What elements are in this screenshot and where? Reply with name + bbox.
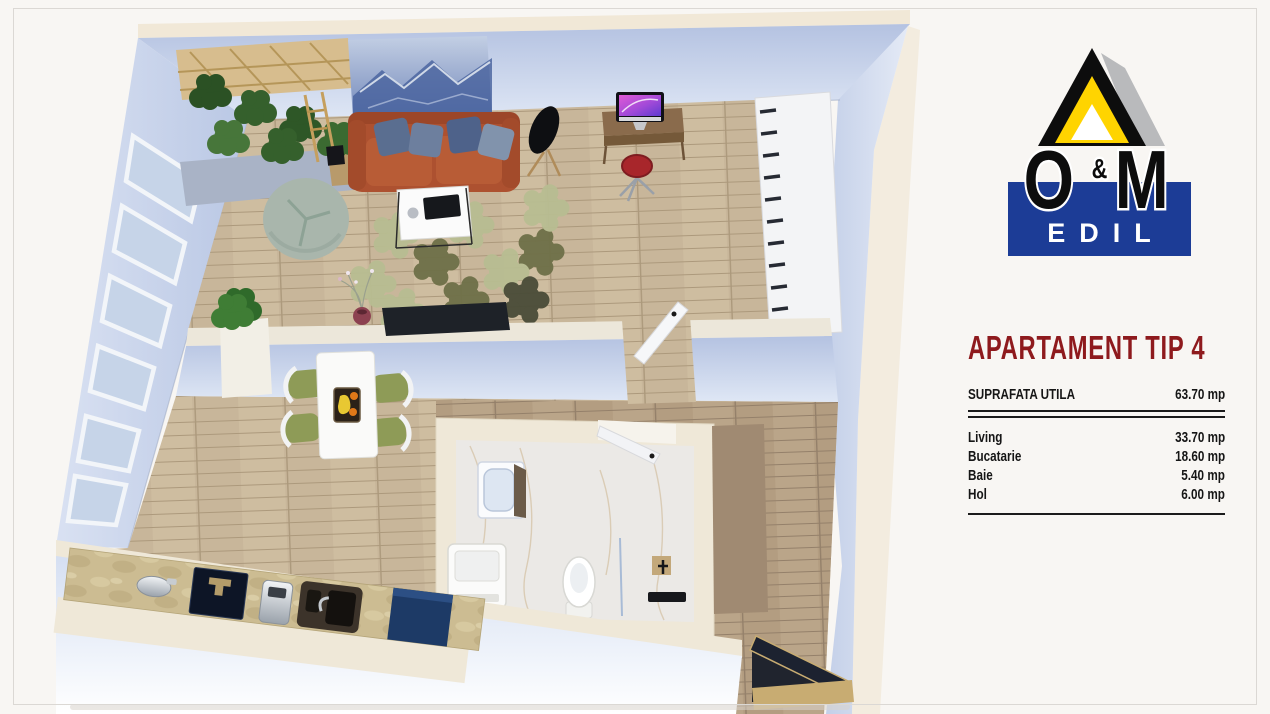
summary-label: SUPRAFATA UTILA (968, 386, 1075, 403)
sofa (348, 112, 520, 192)
ground-shadow (70, 704, 850, 710)
toaster (258, 580, 293, 625)
room-value: 18.60 mp (1175, 448, 1225, 465)
table-vase (408, 208, 419, 219)
tv-console (382, 302, 510, 336)
laptop (423, 194, 461, 220)
mountain-painting (348, 36, 492, 118)
floorplan-render (0, 0, 960, 714)
pouf-chair (263, 178, 349, 260)
pillow (373, 117, 413, 157)
logo-letter-m: M (1115, 133, 1169, 226)
room-value: 5.40 mp (1181, 467, 1225, 484)
logo-edil-text: EDIL (1047, 218, 1165, 248)
wardrobe-closet (755, 92, 842, 336)
hall-mat (712, 424, 768, 614)
room-label: Baie (968, 467, 993, 484)
apartment-title: APARTAMENT TIP 4 (968, 329, 1270, 367)
room-row-baie: Baie 5.40 mp (968, 467, 1225, 486)
toilet (563, 557, 595, 618)
room-row-living: Living 33.70 mp (968, 429, 1225, 448)
shower-drain (648, 592, 686, 602)
single-rule (968, 513, 1225, 515)
fridge (387, 588, 453, 647)
summary-row: SUPRAFATA UTILA 63.70 mp (968, 386, 1225, 405)
room-label: Living (968, 429, 1002, 446)
black-sculpture (326, 145, 345, 166)
room-value: 6.00 mp (1181, 486, 1225, 503)
kitchen-sink (296, 580, 363, 633)
brand-logo: O & M EDIL (988, 28, 1208, 263)
room-label: Bucatarie (968, 448, 1021, 465)
pillar (220, 318, 272, 398)
pillow (408, 122, 444, 158)
logo-ampersand: & (1092, 153, 1108, 184)
area-table: SUPRAFATA UTILA 63.70 mp Living 33.70 mp… (968, 386, 1225, 515)
page: O & M EDIL APARTAMENT TIP 4 SUPRAFATA UT… (0, 0, 1270, 714)
room-row-hol: Hol 6.00 mp (968, 486, 1225, 505)
rooms-list: Living 33.70 mp Bucatarie 18.60 mp Baie … (968, 429, 1225, 505)
summary-value: 63.70 mp (1175, 386, 1225, 403)
cooktop (189, 567, 248, 619)
logo-letter-o: O (1024, 133, 1074, 226)
fruit-tray (334, 388, 360, 422)
room-value: 33.70 mp (1175, 429, 1225, 446)
bathroom-sink-cabinet (478, 462, 526, 518)
double-rule (968, 410, 1225, 418)
room-row-bucatarie: Bucatarie 18.60 mp (968, 448, 1225, 467)
room-label: Hol (968, 486, 987, 503)
